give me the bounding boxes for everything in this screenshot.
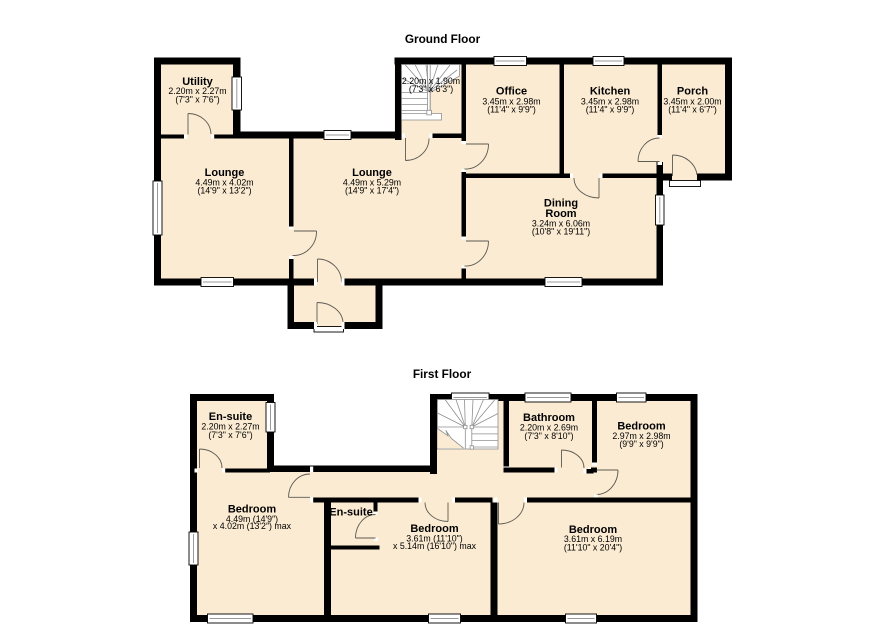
svg-text:(7'3" x 7'6"): (7'3" x 7'6") bbox=[175, 95, 219, 105]
svg-text:(11'10" x 20'4"): (11'10" x 20'4") bbox=[564, 542, 622, 552]
svg-text:(7'3" x 8'10"): (7'3" x 8'10") bbox=[524, 431, 573, 441]
svg-text:(14'9" x 13'2"): (14'9" x 13'2") bbox=[197, 186, 251, 196]
svg-text:(11'4" x 9'9"): (11'4" x 9'9") bbox=[586, 105, 635, 115]
svg-text:x 5.14m (16'10") max: x 5.14m (16'10") max bbox=[393, 541, 477, 551]
svg-text:(11'4" x 9'9"): (11'4" x 9'9") bbox=[487, 105, 536, 115]
svg-text:x 4.02m (13'2″) max: x 4.02m (13'2″) max bbox=[213, 521, 292, 531]
svg-text:Ground Floor: Ground Floor bbox=[405, 32, 481, 46]
svg-text:(9'9" x 9'9"): (9'9" x 9'9") bbox=[619, 439, 663, 449]
svg-text:En-suite: En-suite bbox=[329, 507, 372, 519]
svg-text:(7'3" x 6'3"): (7'3" x 6'3") bbox=[409, 84, 453, 94]
svg-text:First Floor: First Floor bbox=[413, 367, 472, 381]
svg-text:(14'9" x 17'4"): (14'9" x 17'4") bbox=[345, 186, 399, 196]
svg-text:(10'8" x 19'11"): (10'8" x 19'11") bbox=[532, 227, 590, 237]
svg-text:(7'3" x 7'6"): (7'3" x 7'6") bbox=[208, 430, 252, 440]
svg-text:(11'4" x 6'7"): (11'4" x 6'7") bbox=[668, 105, 717, 115]
